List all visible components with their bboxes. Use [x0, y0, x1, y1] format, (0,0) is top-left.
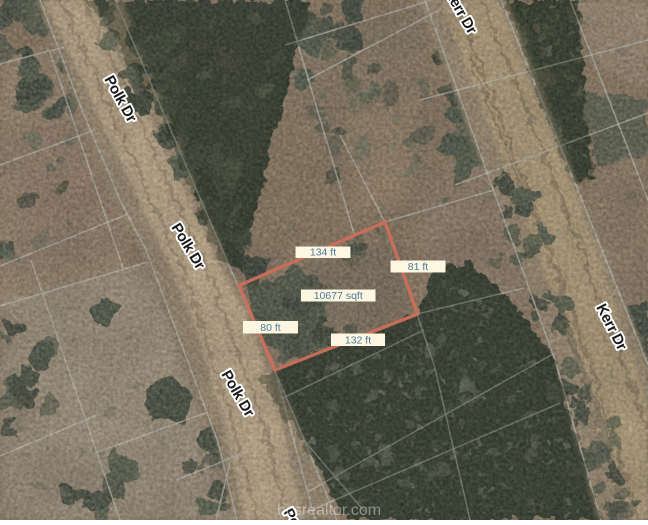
svg-text:134 ft: 134 ft — [310, 247, 336, 259]
svg-text:10677 sqft: 10677 sqft — [314, 290, 363, 302]
svg-text:132 ft: 132 ft — [345, 335, 371, 347]
svg-text:bcsrealtor.com: bcsrealtor.com — [277, 502, 381, 519]
svg-text:81 ft: 81 ft — [408, 261, 429, 273]
svg-text:80 ft: 80 ft — [260, 322, 281, 334]
